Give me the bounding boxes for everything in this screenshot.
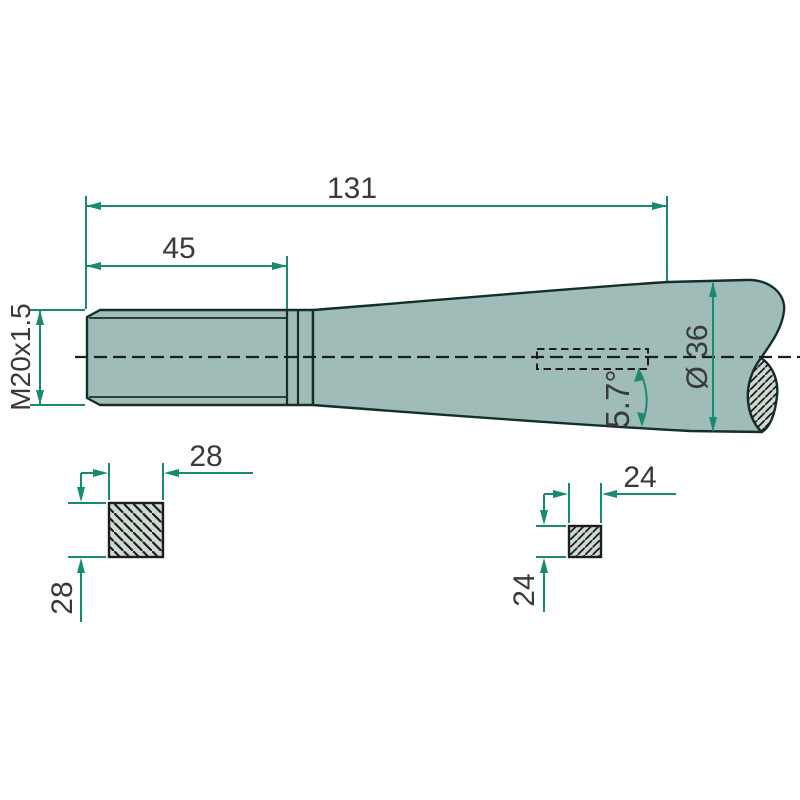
dim-45-arrow-right (272, 262, 287, 270)
cross-section-large: 28 28 (46, 440, 253, 622)
dim-28h-arrow-bottom (77, 558, 85, 573)
dim-thread-length: 45 (86, 232, 287, 309)
dim-131-arrow-left (86, 202, 101, 210)
dim-24w-label: 24 (623, 461, 656, 494)
dim-28w-label: 28 (189, 440, 222, 473)
dim-45-label: 45 (162, 232, 195, 265)
large-square-hatch (110, 504, 162, 556)
dim-45-arrow-left (86, 262, 101, 270)
dim-24h-arrow-top (540, 510, 548, 525)
technical-drawing: 131 45 M20x1.5 Ø 36 (0, 0, 800, 800)
dim-angle-label: 5.7° (599, 369, 636, 428)
dim-28h-label: 28 (46, 581, 79, 614)
dim-28w-arrow-left (93, 469, 108, 477)
dim-24w-arrow-right (602, 490, 617, 498)
dim-m20-label: M20x1.5 (5, 303, 36, 410)
dim-131-label: 131 (327, 172, 377, 205)
drawing-page: 131 45 M20x1.5 Ø 36 (0, 0, 800, 800)
dim-thread-spec: M20x1.5 (5, 303, 85, 410)
dim-24h-arrow-bottom (540, 558, 548, 573)
dim-28h-arrow-top (77, 487, 85, 502)
dim-24w-arrow-left (553, 490, 568, 498)
dim-131-arrow-right (652, 202, 667, 210)
dim-d36-label: Ø 36 (681, 324, 714, 389)
small-square-hatch (570, 527, 600, 556)
dim-m20-arrow-top (36, 310, 44, 325)
dim-m20-arrow-bottom (36, 390, 44, 405)
dim-28w-arrow-right (164, 469, 179, 477)
dim-24h-label: 24 (508, 573, 541, 606)
cross-section-small: 24 24 (508, 461, 676, 612)
